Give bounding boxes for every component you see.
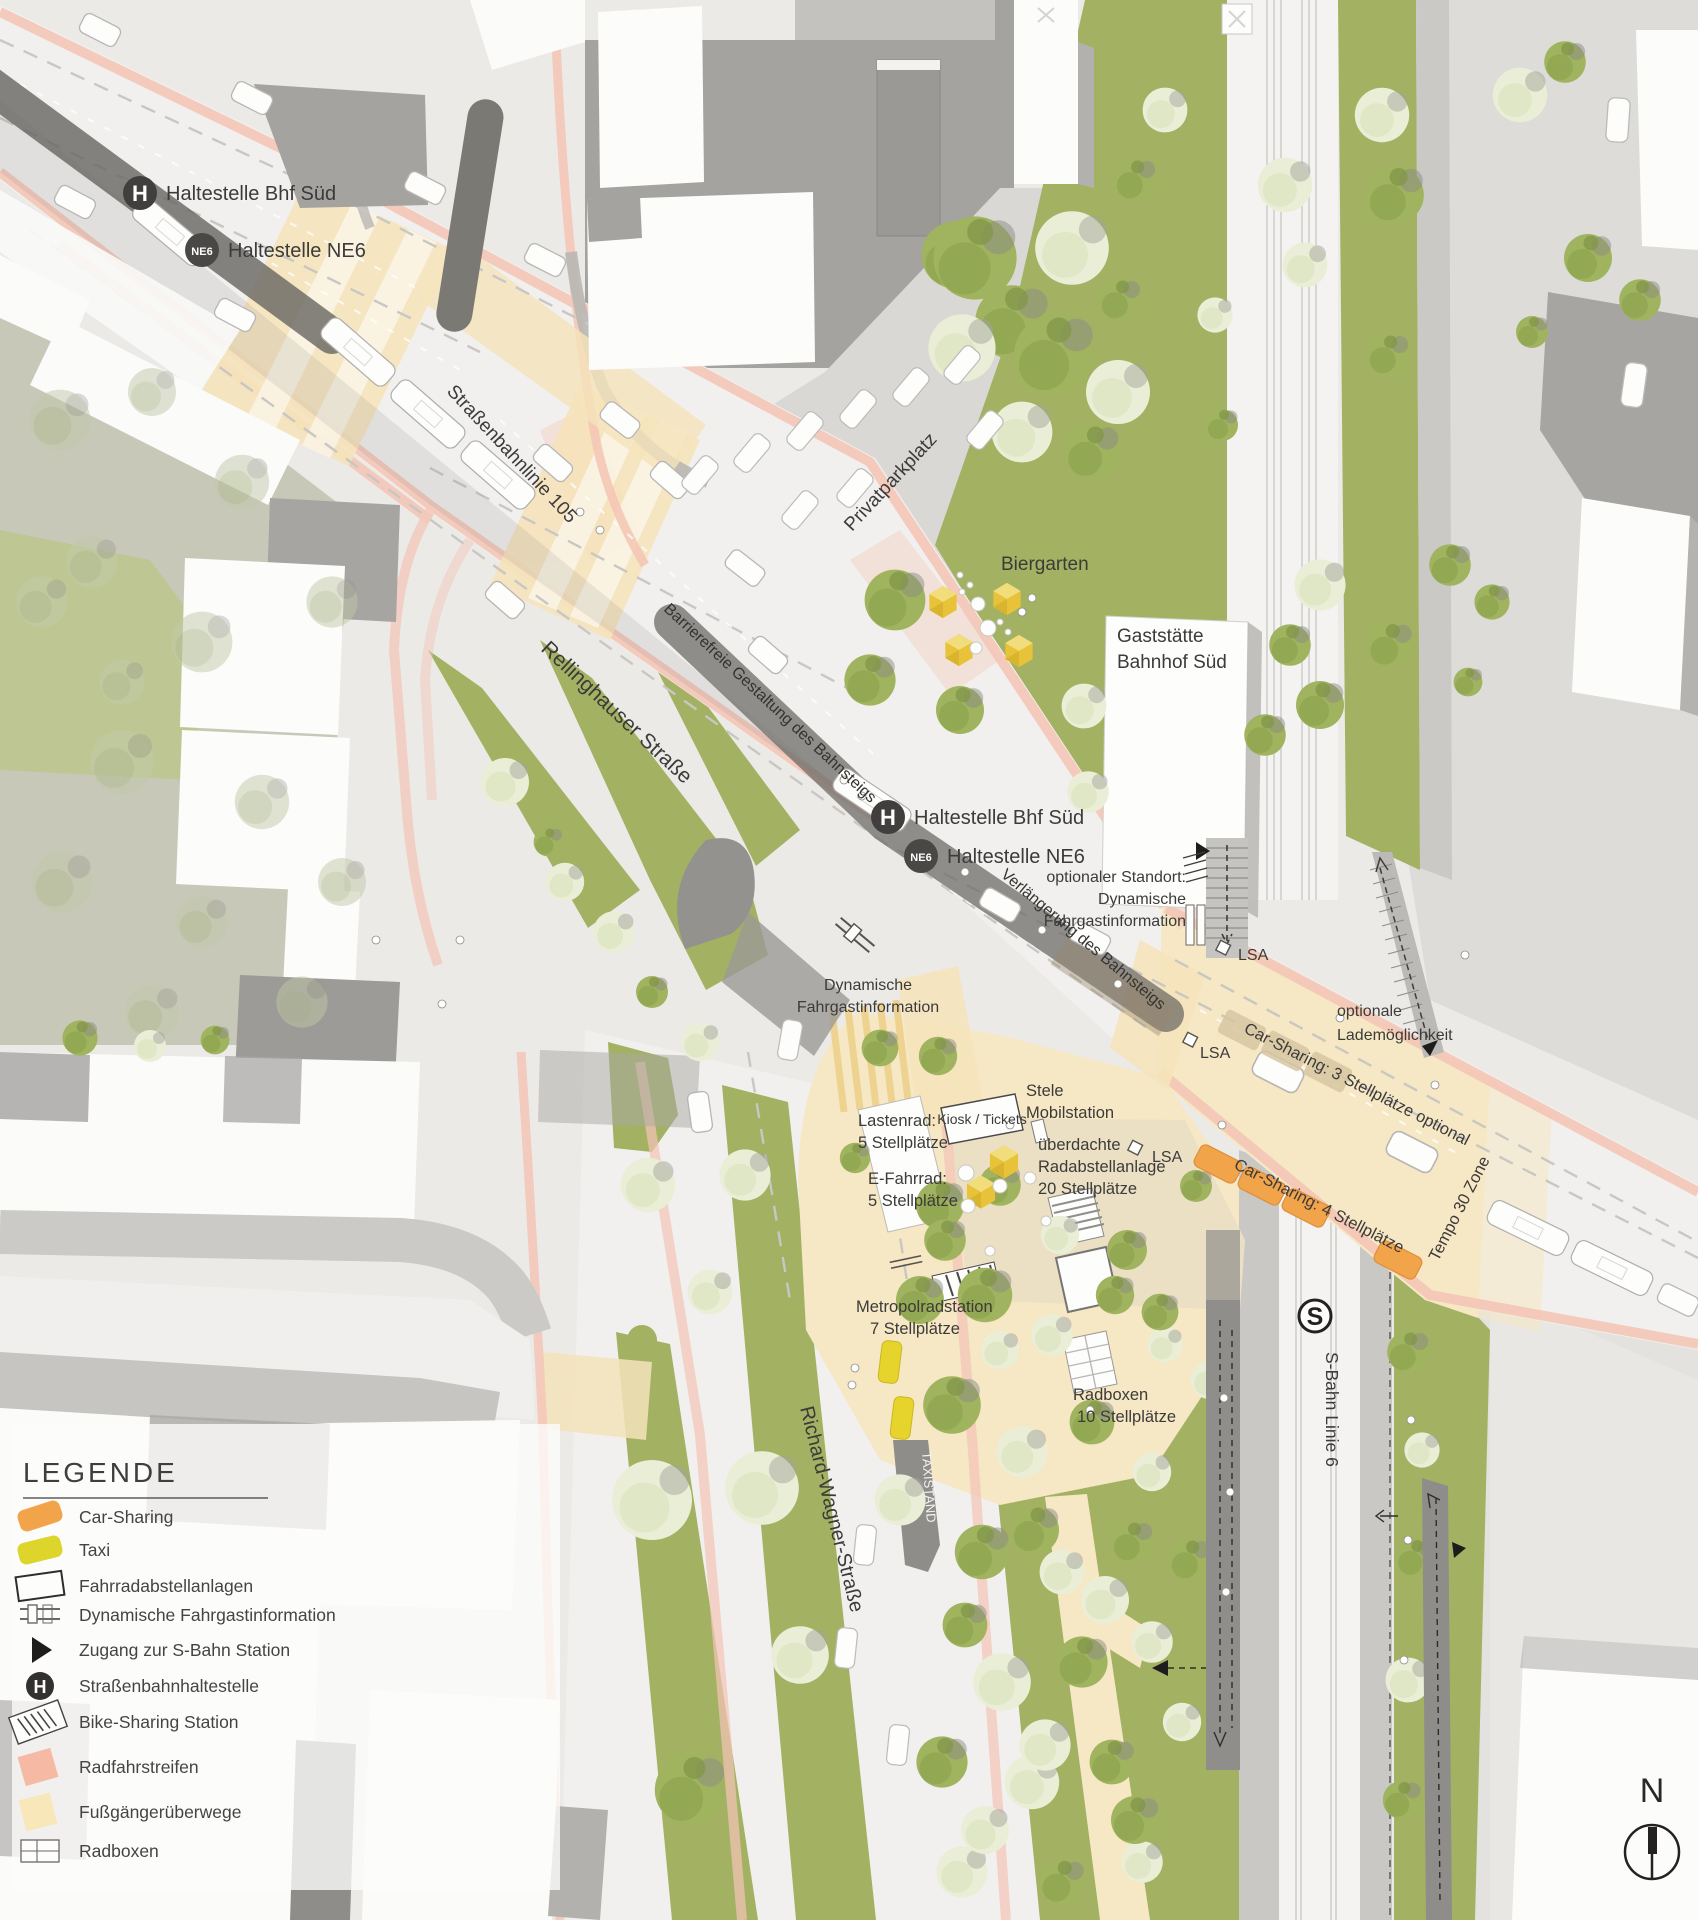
svg-text:LSA: LSA	[1200, 1045, 1231, 1062]
svg-text:5 Stellplätze: 5 Stellplätze	[858, 1134, 948, 1152]
svg-text:Haltestelle Bhf Süd: Haltestelle Bhf Süd	[166, 183, 336, 205]
svg-text:Kiosk / Tickets: Kiosk / Tickets	[937, 1111, 1026, 1127]
svg-text:Radabstellanlage: Radabstellanlage	[1038, 1158, 1166, 1176]
svg-text:H: H	[880, 805, 896, 830]
svg-text:Mobilstation: Mobilstation	[1026, 1104, 1114, 1122]
svg-text:NE6: NE6	[191, 246, 212, 258]
svg-text:optionaler Standort:: optionaler Standort:	[1046, 869, 1186, 886]
svg-text:H: H	[132, 181, 148, 206]
svg-text:Radboxen: Radboxen	[1073, 1386, 1148, 1404]
svg-text:optionale: optionale	[1337, 1003, 1402, 1020]
svg-text:S: S	[1307, 1303, 1324, 1331]
svg-text:Fußgängerüberwege: Fußgängerüberwege	[79, 1802, 241, 1822]
svg-text:E-Fahrrad:: E-Fahrrad:	[868, 1170, 947, 1188]
svg-text:H: H	[34, 1677, 47, 1697]
svg-text:Taxi: Taxi	[79, 1540, 110, 1560]
svg-text:Zugang zur S-Bahn Station: Zugang zur S-Bahn Station	[79, 1640, 290, 1660]
svg-text:Dynamische: Dynamische	[1098, 891, 1186, 908]
svg-text:Radboxen: Radboxen	[79, 1841, 159, 1861]
svg-text:Lastenrad:: Lastenrad:	[858, 1112, 936, 1130]
svg-text:Haltestelle NE6: Haltestelle NE6	[228, 240, 366, 262]
svg-text:20 Stellplätze: 20 Stellplätze	[1038, 1180, 1137, 1198]
svg-text:Stele: Stele	[1026, 1082, 1064, 1100]
svg-text:LSA: LSA	[1238, 947, 1269, 964]
svg-text:Car-Sharing: Car-Sharing	[79, 1507, 173, 1527]
svg-text:10 Stellplätze: 10 Stellplätze	[1077, 1408, 1176, 1426]
svg-text:7 Stellplätze: 7 Stellplätze	[870, 1320, 960, 1338]
svg-text:Radfahrstreifen: Radfahrstreifen	[79, 1757, 199, 1777]
svg-text:Fahrradabstellanlagen: Fahrradabstellanlagen	[79, 1576, 253, 1596]
svg-text:N: N	[1640, 1772, 1665, 1810]
svg-text:Dynamische: Dynamische	[824, 977, 912, 994]
svg-text:5 Stellplätze: 5 Stellplätze	[868, 1192, 958, 1210]
svg-text:Straßenbahnhaltestelle: Straßenbahnhaltestelle	[79, 1676, 259, 1696]
svg-text:Bike-Sharing Station: Bike-Sharing Station	[79, 1712, 239, 1732]
svg-text:überdachte: überdachte	[1038, 1136, 1121, 1154]
svg-text:Haltestelle NE6: Haltestelle NE6	[947, 846, 1085, 868]
svg-text:LEGENDE: LEGENDE	[23, 1457, 178, 1488]
svg-text:Haltestelle Bhf Süd: Haltestelle Bhf Süd	[914, 807, 1084, 829]
svg-text:Metropolradstation: Metropolradstation	[856, 1298, 993, 1316]
svg-text:Bahnhof Süd: Bahnhof Süd	[1117, 652, 1227, 673]
svg-text:Fahrgastinformation: Fahrgastinformation	[797, 999, 939, 1016]
svg-text:NE6: NE6	[910, 852, 931, 864]
svg-text:Fahrgastinformation: Fahrgastinformation	[1044, 913, 1186, 930]
svg-text:Lademöglichkeit: Lademöglichkeit	[1337, 1027, 1453, 1044]
svg-text:Dynamische Fahrgastinformation: Dynamische Fahrgastinformation	[79, 1605, 336, 1625]
svg-text:Gaststätte: Gaststätte	[1117, 626, 1204, 647]
svg-text:S-Bahn Linie 6: S-Bahn Linie 6	[1322, 1352, 1342, 1467]
svg-text:Biergarten: Biergarten	[1001, 554, 1089, 575]
